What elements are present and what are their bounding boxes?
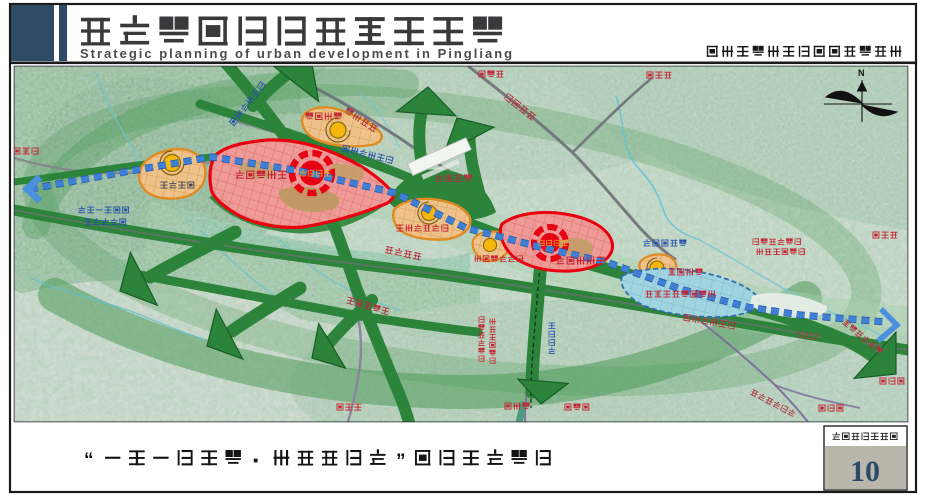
- svg-text:10: 10: [850, 455, 880, 488]
- svg-text:”: ”: [396, 451, 406, 472]
- svg-text:“: “: [84, 450, 94, 471]
- svg-text:Strategic planning of urban de: Strategic planning of urban development …: [80, 46, 514, 61]
- svg-text:N: N: [858, 68, 865, 78]
